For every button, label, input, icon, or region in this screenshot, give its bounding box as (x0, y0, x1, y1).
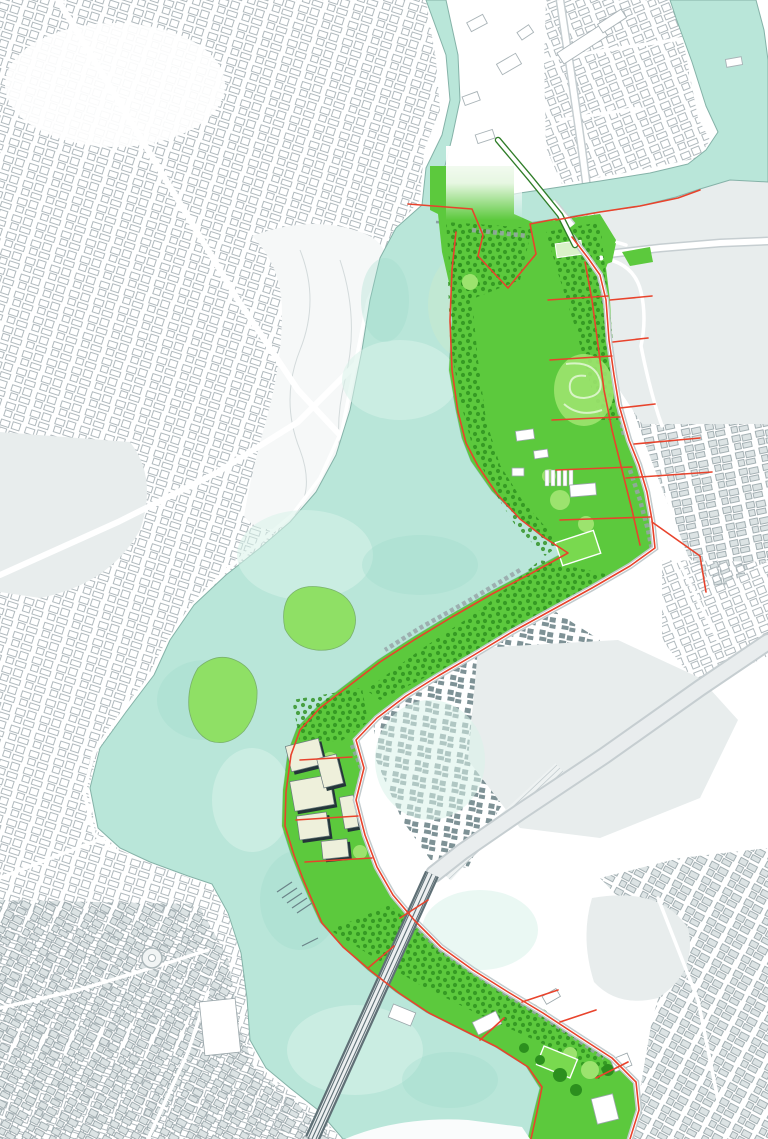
water-shadow-2 (362, 535, 478, 595)
lawn-circle-5 (581, 1061, 599, 1079)
water-shadow-5 (361, 258, 409, 342)
water-highlight-1 (342, 340, 458, 420)
park-building-3 (512, 468, 524, 476)
masterplan-map (0, 0, 768, 1139)
bush-5 (519, 1043, 529, 1053)
park-building-4 (570, 483, 597, 497)
bush-3 (535, 1055, 545, 1065)
park-building-2 (534, 449, 549, 459)
water-highlight-4 (212, 748, 292, 852)
lawn-circle-1 (550, 490, 570, 510)
bush-2 (570, 1084, 582, 1096)
water-highlight-2 (237, 510, 373, 600)
parking-bars (545, 470, 573, 486)
lawn-circle-4 (462, 274, 478, 290)
water-shadow-4 (402, 1052, 498, 1108)
palace-building-5 (321, 839, 349, 860)
water-highlight-3 (375, 700, 485, 820)
waterfront-building-southwest (199, 998, 240, 1055)
open-area-northwest (5, 23, 225, 147)
map-svg (0, 0, 768, 1139)
roundabout-southwest-center (149, 955, 156, 962)
bush-1 (553, 1068, 567, 1082)
lawn-circle-7 (353, 845, 367, 859)
palace-building-3 (296, 812, 329, 840)
park-building-1 (515, 429, 534, 441)
